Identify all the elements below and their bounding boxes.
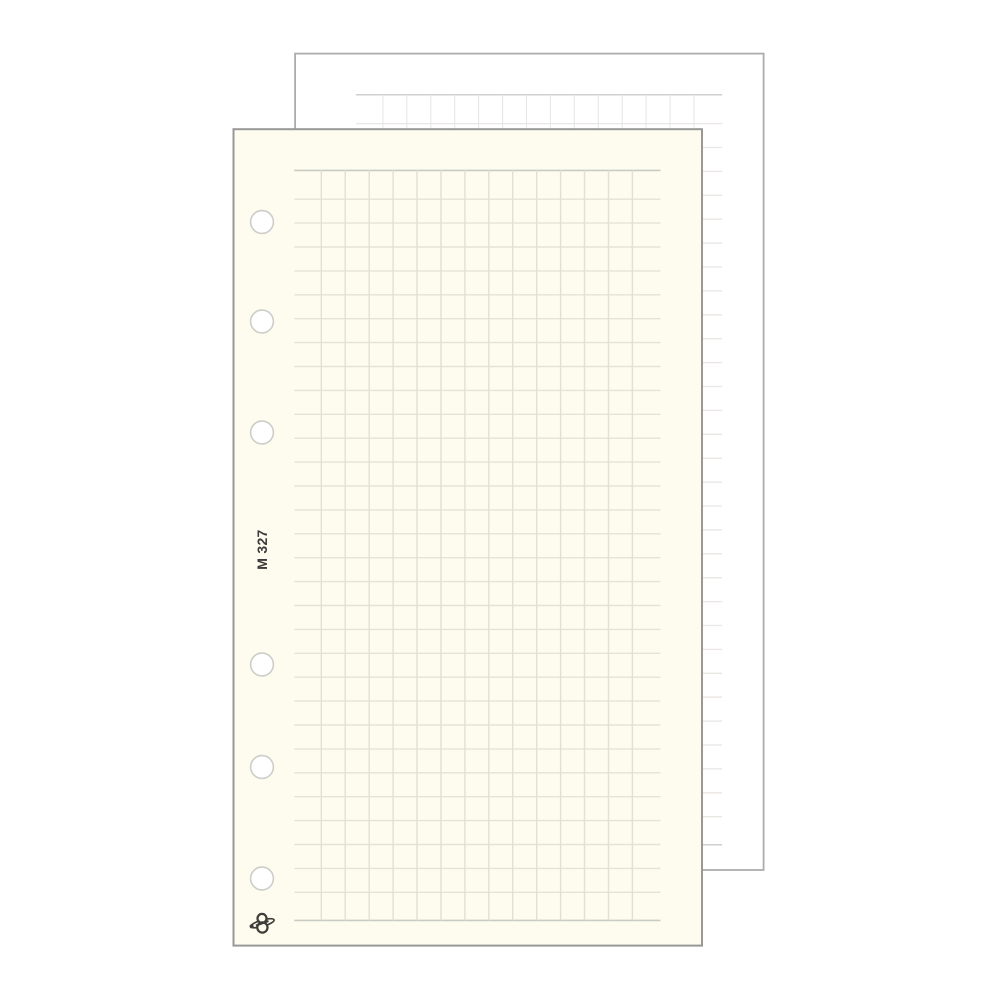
svg-text:M 327: M 327 bbox=[254, 529, 270, 569]
